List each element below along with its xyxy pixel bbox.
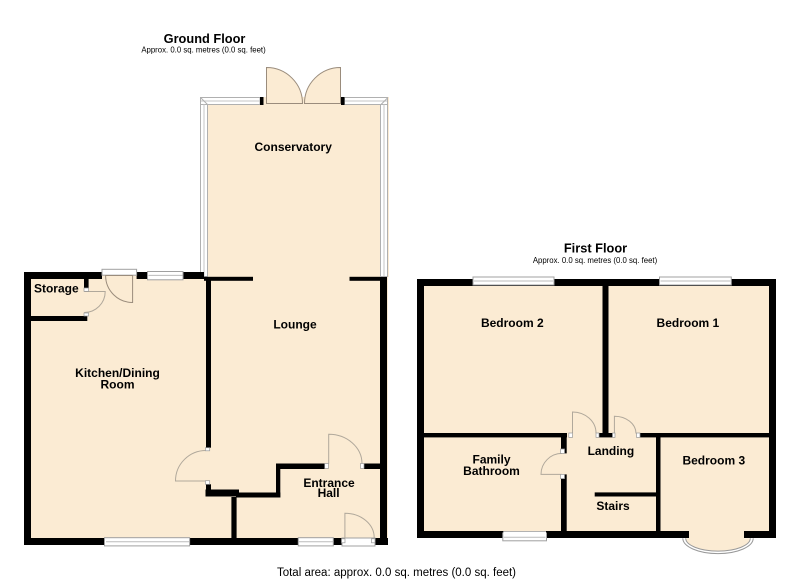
svg-text:Lounge: Lounge: [273, 317, 317, 331]
svg-text:Ground Floor: Ground Floor: [164, 31, 246, 46]
svg-text:Approx. 0.0 sq. metres (0.0 sq: Approx. 0.0 sq. metres (0.0 sq. feet): [533, 256, 658, 265]
svg-text:Total area: approx. 0.0 sq. me: Total area: approx. 0.0 sq. metres (0.0 …: [277, 567, 516, 579]
svg-text:Room: Room: [101, 377, 135, 391]
svg-text:Bedroom 1: Bedroom 1: [657, 316, 720, 330]
svg-text:First Floor: First Floor: [564, 241, 627, 256]
svg-text:Storage: Storage: [34, 281, 79, 295]
svg-text:Approx. 0.0 sq. metres (0.0 sq: Approx. 0.0 sq. metres (0.0 sq. feet): [141, 45, 266, 54]
svg-text:Stairs: Stairs: [596, 499, 630, 513]
svg-text:Bathroom: Bathroom: [463, 464, 520, 478]
svg-text:Hall: Hall: [318, 486, 340, 500]
svg-text:Bedroom 2: Bedroom 2: [481, 316, 544, 330]
svg-text:Conservatory: Conservatory: [255, 140, 333, 154]
svg-text:Landing: Landing: [588, 444, 635, 458]
svg-text:Bedroom 3: Bedroom 3: [682, 454, 745, 468]
